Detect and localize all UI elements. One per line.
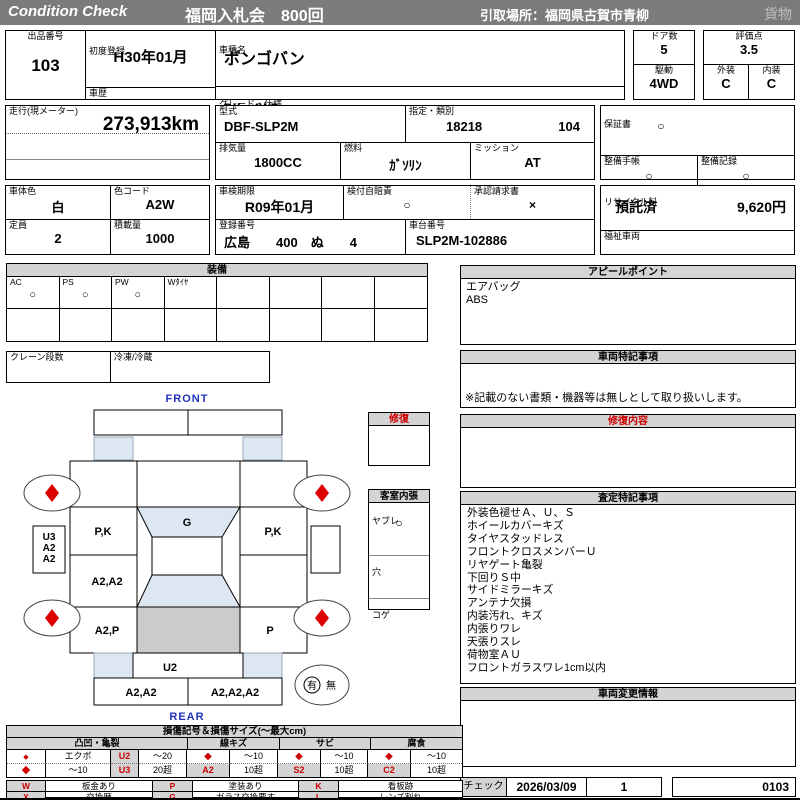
legend-corrosion-size2: 10超 bbox=[411, 764, 462, 777]
vehicle-category: 貨物 bbox=[764, 4, 792, 24]
recycle-table: リサイクル料 預託済 9,620円 福祉車両 bbox=[600, 185, 795, 255]
appeal-title: アピールポイント bbox=[461, 266, 795, 279]
service-book-mark: ○ bbox=[601, 169, 697, 183]
equipment-cell-empty bbox=[165, 309, 218, 341]
vehicle-notes-disclaimer: ※記載のない書類・機器等は無しとして取り扱いします。 bbox=[465, 389, 748, 405]
payload-label: 積載量 bbox=[114, 221, 141, 231]
cabin-row-label: コゲ bbox=[372, 611, 390, 621]
equipment-cell: PW ○ bbox=[112, 277, 165, 309]
brand-logo: Condition Check bbox=[8, 3, 127, 20]
color-code-label: 色コード bbox=[114, 187, 150, 197]
legend-group: 線キズ bbox=[188, 738, 280, 749]
equipment-title: 装備 bbox=[7, 264, 427, 277]
odometer-box: 走行(現メーター) 273,913km bbox=[5, 105, 210, 180]
service-record-mark: ○ bbox=[698, 169, 794, 183]
designation-label: 指定・類別 bbox=[409, 107, 454, 117]
legend-dent-code2: U3 bbox=[111, 764, 139, 777]
damage-mark-left-rear: A2,P bbox=[95, 625, 119, 637]
diagram-rear-label: REAR bbox=[169, 711, 204, 723]
crane-fridge-table: クレーン段数 冷凍/冷蔵 bbox=[6, 351, 270, 383]
model-code-label: 型式 bbox=[219, 107, 237, 117]
diagram-front-label: FRONT bbox=[166, 393, 209, 405]
exterior-grade: C bbox=[704, 76, 748, 91]
appeal-box: アピールポイント エアバッグ ABS bbox=[460, 265, 796, 345]
interior-grade: C bbox=[749, 76, 794, 91]
interior-label: 内装 bbox=[749, 65, 794, 76]
inspection-table: 車検期限 R09年01月 検付自賠責 ○ 承認請求書 × 登録番号 広島 400… bbox=[215, 185, 595, 255]
rear-window bbox=[137, 575, 240, 607]
inspection-until: R09年01月 bbox=[216, 197, 343, 217]
class-no: 104 bbox=[558, 119, 580, 134]
legend-scratch-size2: 10超 bbox=[230, 764, 278, 777]
repair-content-title: 修復内容 bbox=[461, 415, 795, 428]
check-count: 1 bbox=[587, 778, 661, 796]
legend-dent-size1: 〜20 bbox=[139, 750, 187, 764]
cabin-lining-box: 客室内張 ヤブレ ○ 穴 コゲ bbox=[368, 489, 430, 610]
assessment-line: フロントクロスメンバーＵ bbox=[467, 546, 795, 559]
equipment-table: 装備 AC ○ PS ○ PW ○ Wﾀｲﾔ bbox=[6, 263, 428, 342]
sheet-code-box: 0103 bbox=[672, 777, 796, 797]
diamond-icon: ◆ bbox=[204, 751, 212, 762]
service-book-label: 整備手帳 bbox=[604, 157, 640, 167]
assessment-line: 下回りＳ中 bbox=[467, 572, 795, 585]
drive-value: 4WD bbox=[634, 76, 694, 91]
vehicle-notes-title: 車両特記事項 bbox=[461, 351, 795, 364]
lot-info-table: 出品番号 103 初度登録 H30年01月 車歴 車種名 ボンゴバン bbox=[5, 30, 625, 100]
equipment-cell: AC ○ bbox=[7, 277, 60, 309]
welfare-label: 福祉車両 bbox=[604, 232, 640, 242]
cargo-area-shaded bbox=[137, 607, 240, 653]
damage-legend-table: 損傷記号＆損傷サイズ(〜最大cm) 凸凹・亀裂 線キズ サビ 腐食 ◆ エクボ … bbox=[6, 725, 463, 778]
fuel-label: 燃料 bbox=[344, 144, 362, 154]
legend-dent-sym2: 〜10 bbox=[46, 764, 111, 777]
drive-label: 駆動 bbox=[634, 65, 694, 76]
equipment-cell: PS ○ bbox=[60, 277, 113, 309]
equipment-cell-empty bbox=[322, 309, 375, 341]
vin-label: 車台番号 bbox=[409, 221, 445, 231]
roof bbox=[152, 537, 222, 575]
car-damage-diagram: FRONT U3 A2 A2 bbox=[0, 390, 360, 725]
capacity-label: 定員 bbox=[9, 221, 27, 231]
doors-drive-table: ドア数 5 駆動 4WD bbox=[633, 30, 695, 100]
damage-mark-windshield: G bbox=[183, 517, 192, 529]
first-registration-label: 初度登録 bbox=[89, 47, 125, 57]
legend-corrosion-code: C2 bbox=[368, 764, 411, 777]
equipment-cell-empty bbox=[217, 309, 270, 341]
legend-corrosion-size1: 〜10 bbox=[411, 750, 462, 764]
legend-group: 凸凹・亀裂 bbox=[7, 738, 188, 749]
crane-label: クレーン段数 bbox=[10, 353, 64, 363]
cabin-row-label: ヤブレ bbox=[372, 517, 399, 527]
model-name-label: 車種名 bbox=[219, 46, 246, 56]
recycle-label: リサイクル料 bbox=[604, 198, 658, 208]
exterior-label: 外装 bbox=[704, 65, 748, 76]
diamond-icon: ◆ bbox=[22, 764, 30, 776]
symbol-desc: 塗装あり bbox=[193, 781, 299, 791]
check-row: チェック 2026/03/09 1 bbox=[460, 777, 662, 797]
legend-group: サビ bbox=[280, 738, 371, 749]
repair-flag-box: 修復 bbox=[368, 412, 430, 466]
title-bar: Condition Check 福岡入札会 800回 引取場所：福岡県古賀市青柳… bbox=[0, 0, 800, 25]
model-name: ボンゴバン bbox=[224, 45, 624, 69]
odometer-spare-row bbox=[6, 134, 209, 160]
mission-label: ミッション bbox=[474, 144, 519, 154]
legend-scratch-size1: 〜10 bbox=[230, 750, 278, 764]
legend-dent-sym1: エクボ bbox=[46, 750, 111, 764]
damage-mark-left-center: A2,A2 bbox=[91, 576, 122, 588]
approval-mark: × bbox=[471, 198, 594, 212]
odometer-spare-row2 bbox=[6, 160, 209, 178]
rear-right-corner bbox=[243, 653, 282, 678]
equipment-cell-empty bbox=[270, 309, 323, 341]
spare-tire-badge bbox=[295, 665, 349, 705]
assessment-line: フロントガラスワレ1cm以内 bbox=[467, 662, 795, 675]
legend-rust-code: S2 bbox=[278, 764, 321, 777]
change-info-box: 車両変更情報 bbox=[460, 687, 796, 767]
recycle-fee: 9,620円 bbox=[737, 197, 786, 217]
refrigeration-label: 冷凍/冷蔵 bbox=[114, 353, 153, 363]
left-side-note: A2 bbox=[43, 554, 56, 565]
appeal-line: エアバッグ bbox=[466, 281, 790, 294]
damage-legend-title: 損傷記号＆損傷サイズ(〜最大cm) bbox=[7, 726, 462, 738]
payload-value: 1000 bbox=[111, 231, 209, 246]
assessment-line: 内張りワレ bbox=[467, 623, 795, 636]
assessment-title: 査定特記事項 bbox=[461, 492, 795, 505]
lot-number: 103 bbox=[6, 56, 85, 76]
symbol-desc: 板金あり bbox=[46, 781, 153, 791]
designation-no: 18218 bbox=[446, 119, 482, 134]
assessment-line: アンテナ欠損 bbox=[467, 597, 795, 610]
doors-label: ドア数 bbox=[634, 31, 694, 42]
insurance-label: 検付自賠責 bbox=[347, 187, 392, 197]
plate-label: 登録番号 bbox=[219, 221, 255, 231]
equipment-cell bbox=[270, 277, 323, 309]
equipment-cell-empty bbox=[375, 309, 428, 341]
repair-content-box: 修復内容 bbox=[460, 414, 796, 488]
body-color-label: 車体色 bbox=[9, 187, 36, 197]
legend-dent-code1: U2 bbox=[111, 750, 139, 764]
displacement-label: 排気量 bbox=[219, 144, 246, 154]
assessment-line: 内装汚れ、キズ bbox=[467, 610, 795, 623]
assessment-line: サイドミラーキズ bbox=[467, 584, 795, 597]
diamond-icon: ◆ bbox=[23, 754, 28, 761]
equipment-cell-empty bbox=[60, 309, 113, 341]
check-date: 2026/03/09 bbox=[507, 778, 587, 796]
score-value: 3.5 bbox=[704, 42, 794, 57]
symbol-code: W bbox=[7, 781, 46, 791]
legend-dent-size2: 20超 bbox=[139, 764, 187, 777]
auction-condition-sheet: Condition Check 福岡入札会 800回 引取場所：福岡県古賀市青柳… bbox=[0, 0, 800, 800]
assessment-line: 天張りスレ bbox=[467, 636, 795, 649]
cabin-row-label: 穴 bbox=[372, 568, 381, 578]
assessment-line: ホイールカバーキズ bbox=[467, 520, 795, 533]
check-label: チェック bbox=[461, 778, 507, 796]
damage-mark-front-left-door: P,K bbox=[95, 526, 112, 538]
score-table: 評価点 3.5 外装 C 内装 C bbox=[703, 30, 795, 100]
front-left-corner bbox=[94, 437, 133, 460]
inspection-label: 車検期限 bbox=[219, 187, 255, 197]
equipment-cell-empty bbox=[112, 309, 165, 341]
color-code: A2W bbox=[111, 197, 209, 212]
doors-value: 5 bbox=[634, 42, 694, 57]
equipment-cell bbox=[375, 277, 428, 309]
diamond-icon: ◆ bbox=[295, 751, 303, 762]
capacity-value: 2 bbox=[6, 231, 110, 246]
legend-group: 腐食 bbox=[371, 738, 462, 749]
front-right-corner bbox=[243, 437, 282, 460]
appeal-line: ABS bbox=[466, 294, 790, 307]
rear-gate bbox=[133, 653, 243, 678]
assessment-line: リヤゲート亀裂 bbox=[467, 559, 795, 572]
left-side-note: A2 bbox=[43, 543, 56, 554]
equipment-cell: Wﾀｲﾔ bbox=[165, 277, 218, 309]
symbol-code: K bbox=[299, 781, 339, 791]
legend-rust-size2: 10超 bbox=[321, 764, 368, 777]
symbol-desc: 看板跡 bbox=[339, 781, 462, 791]
cabin-lining-title: 客室内張 bbox=[369, 490, 429, 503]
sheet-code: 0103 bbox=[673, 778, 795, 796]
plate-value: 広島 400 ぬ 4 bbox=[224, 232, 405, 251]
auction-title: 福岡入札会 800回 bbox=[185, 2, 324, 26]
equipment-cell-empty bbox=[7, 309, 60, 341]
displacement-value: 1800CC bbox=[216, 155, 340, 170]
model-spec-table: 型式 DBF-SLP2M 指定・類別 18218 104 排気量 1800CC … bbox=[215, 105, 595, 180]
equipment-cell bbox=[322, 277, 375, 309]
right-side-note-box bbox=[311, 526, 340, 573]
spare-tire-present: 有 bbox=[307, 679, 317, 692]
approval-label: 承認請求書 bbox=[474, 187, 519, 197]
vin-value: SLP2M-102886 bbox=[416, 233, 594, 248]
damage-mark-rear-gate: U2 bbox=[163, 662, 177, 674]
body-color: 白 bbox=[6, 197, 110, 216]
rear-left-corner bbox=[94, 653, 133, 678]
warranty-label: 保証書 bbox=[604, 120, 631, 130]
symbol-code: P bbox=[153, 781, 193, 791]
diamond-icon: ◆ bbox=[385, 751, 393, 762]
color-capacity-table: 車体色 白 色コード A2W 定員 2 積載量 1000 bbox=[5, 185, 210, 255]
assessment-line: タイヤスタッドレス bbox=[467, 533, 795, 546]
equipment-cell bbox=[217, 277, 270, 309]
damage-mark-front-right-door: P,K bbox=[265, 526, 282, 538]
spare-tire-absent: 無 bbox=[326, 679, 336, 692]
insurance-mark: ○ bbox=[344, 198, 470, 212]
damage-mark-rear-bumper-right: A2,A2,A2 bbox=[211, 687, 259, 699]
legend-rust-size1: 〜10 bbox=[321, 750, 368, 764]
pickup-location: 引取場所：福岡県古賀市青柳 bbox=[480, 5, 649, 24]
change-info-title: 車両変更情報 bbox=[461, 688, 795, 701]
repair-flag-title: 修復 bbox=[369, 413, 429, 426]
damage-mark-right-rear: P bbox=[266, 625, 273, 637]
assessment-box: 査定特記事項 外装色褪せＡ、Ｕ、Ｓ ホイールカバーキズ タイヤスタッドレス フロ… bbox=[460, 491, 796, 684]
left-side-note: U3 bbox=[43, 532, 56, 543]
damage-mark-rear-bumper-left: A2,A2 bbox=[125, 687, 156, 699]
odometer-label: 走行(現メーター) bbox=[9, 107, 78, 117]
service-record-label: 整備記録 bbox=[701, 157, 737, 167]
history-label: 車歴 bbox=[89, 89, 107, 99]
legend-scratch-code: A2 bbox=[187, 764, 230, 777]
vehicle-notes-box: 車両特記事項 ※記載のない書類・機器等は無しとして取り扱いします。 bbox=[460, 350, 796, 408]
score-label: 評価点 bbox=[704, 31, 794, 42]
symbol-legend-table: W 板金あり P 塗装あり K 看板跡 X 交換歴 G ガラス交換要す L レン… bbox=[6, 780, 463, 798]
lot-number-label: 出品番号 bbox=[6, 31, 85, 42]
assessment-line: 荷物室ＡＵ bbox=[467, 649, 795, 662]
assessment-line: 外装色褪せＡ、Ｕ、Ｓ bbox=[467, 507, 795, 520]
documents-table: 保証書 ○ 整備手帳 ○ 整備記録 ○ bbox=[600, 105, 795, 180]
fuel-value: ｶﾞｿﾘﾝ bbox=[341, 155, 470, 174]
mission-value: AT bbox=[471, 155, 594, 170]
model-code: DBF-SLP2M bbox=[224, 119, 405, 134]
